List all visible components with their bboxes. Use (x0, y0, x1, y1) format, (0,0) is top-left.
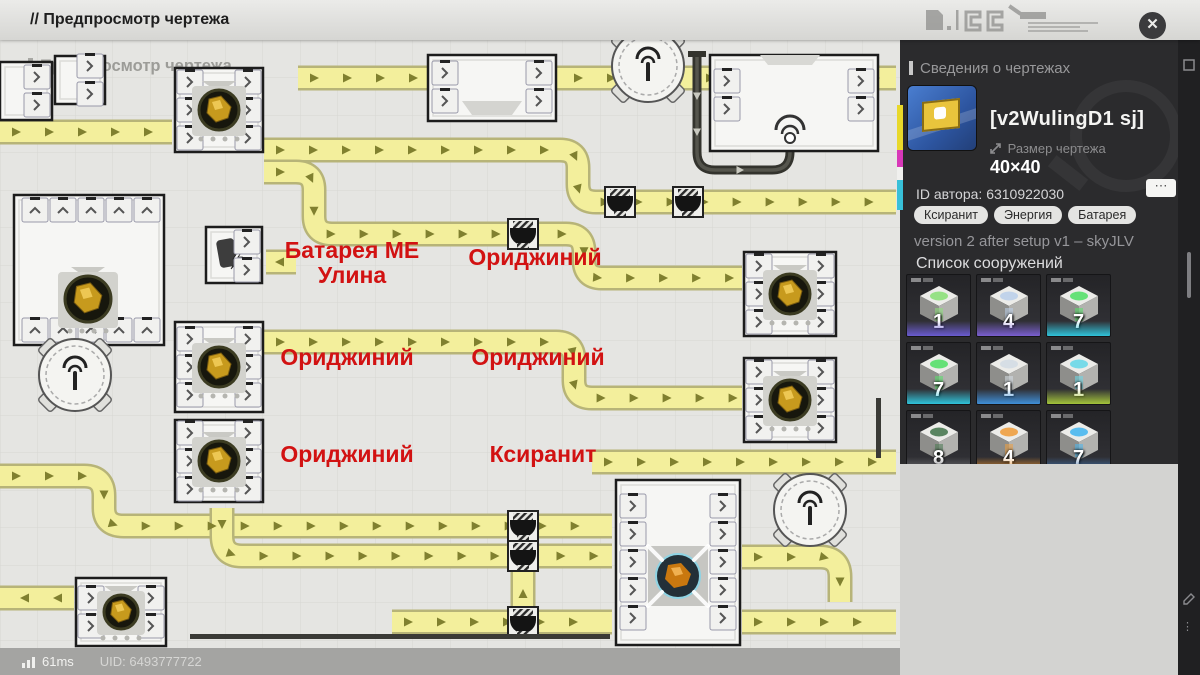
panel-footer-area: Сохранено (900, 464, 1178, 675)
version-note: version 2 after setup v1 – skyJLV (914, 233, 1134, 250)
ping-bars-icon (22, 656, 36, 668)
blueprint-preview-screen: Предпросмотр чертежаБатарея MEУлинаОридж… (0, 0, 1200, 675)
wall (190, 634, 610, 639)
belt-bridge (508, 511, 538, 541)
machine-depot (616, 480, 740, 645)
close-icon: ✕ (1146, 16, 1159, 33)
structure-tile[interactable]: 7 (906, 342, 971, 405)
power-pole (38, 338, 113, 413)
rail-dots: ⋮ (1182, 620, 1193, 633)
tile-accent-strip (1047, 389, 1110, 404)
map-label: Ориджиний (468, 244, 601, 270)
tag-list: КсиранитЭнергияБатарея (914, 206, 1136, 224)
map-label: Улина (318, 262, 387, 288)
tile-micro-label (911, 414, 937, 418)
tile-micro-label (1051, 278, 1077, 282)
structure-tile[interactable]: 1 (976, 342, 1041, 405)
page-title: // Предпросмотр чертежа (30, 11, 229, 29)
tag-chip: Ксиранит (914, 206, 988, 224)
blueprint-name: [v2WulingD1 sj] (990, 108, 1144, 131)
blueprint-size-value: 40×40 (990, 157, 1041, 178)
machine-device (206, 227, 262, 283)
expand-icon (990, 143, 1001, 154)
belt-bridge (508, 541, 538, 571)
machine-iohub (428, 55, 556, 121)
panel-side-rail: ⋮ (1178, 40, 1200, 675)
belt-bridge (605, 187, 635, 217)
tile-accent-strip (907, 321, 970, 336)
tile-micro-label (1051, 346, 1077, 350)
machine-smelter (175, 420, 263, 502)
map-label: Батарея ME (285, 237, 420, 263)
machine-smelter (175, 322, 263, 412)
machine-wifi (710, 55, 878, 151)
rail-edit-icon (1182, 592, 1196, 606)
structure-tile[interactable]: 1 (906, 274, 971, 337)
machine-smelter (744, 358, 836, 442)
header-decoration (920, 2, 1130, 38)
machine-smelter2 (76, 578, 166, 646)
tile-micro-label (981, 278, 1007, 282)
structure-tile[interactable]: 1 (1046, 342, 1111, 405)
top-bar: // Предпросмотр чертежа ✕ (0, 0, 1200, 40)
magnifier-watermark (1070, 80, 1182, 192)
tile-micro-label (981, 414, 1007, 418)
blueprint-info-panel: Сведения о чертежах [v2WulingD1 sj] Разм… (900, 40, 1200, 675)
machine-smelter (175, 68, 263, 152)
blueprint-map[interactable]: Предпросмотр чертежаБатарея MEУлинаОридж… (0, 40, 900, 648)
map-label: Ориджиний (280, 441, 413, 467)
map-label: Ксиранит (490, 441, 597, 467)
panel-section-title: Сведения о чертежах (920, 60, 1070, 77)
more-options-button[interactable]: ⋯ (1146, 179, 1176, 197)
author-id: ID автора: 6310922030 (916, 186, 1064, 202)
tile-accent-strip (977, 321, 1040, 336)
panel-scrollbar[interactable] (1187, 252, 1191, 298)
ellipsis-icon: ⋯ (1155, 178, 1168, 193)
tile-micro-label (911, 278, 937, 282)
tile-micro-label (911, 346, 937, 350)
uid-value: UID: 6493777722 (100, 654, 202, 669)
machine-io (0, 62, 52, 120)
map-area[interactable]: Предпросмотр чертежаБатарея MEУлинаОридж… (0, 40, 900, 648)
belt-bridge (673, 187, 703, 217)
map-label: Ориджиний (471, 344, 604, 370)
tile-accent-strip (1047, 321, 1110, 336)
ping-value: 61ms (42, 654, 74, 669)
structures-title: Список сооружений (916, 255, 1063, 273)
tile-accent-strip (907, 389, 970, 404)
blueprint-thumbnail (908, 86, 976, 150)
tag-chip: Энергия (994, 206, 1062, 224)
structure-tile[interactable]: 4 (976, 274, 1041, 337)
machine-io (55, 53, 105, 106)
tag-chip: Батарея (1068, 206, 1136, 224)
belt-bridge (508, 607, 538, 637)
wall (876, 398, 881, 458)
section-tick (909, 61, 913, 75)
structure-tile[interactable]: 7 (1046, 274, 1111, 337)
blueprint-size-label: Размер чертежа (990, 141, 1106, 156)
tile-micro-label (1051, 414, 1077, 418)
status-bar: 61ms UID: 6493777722 (0, 648, 900, 675)
machine-smelter (744, 252, 836, 336)
tile-accent-strip (977, 389, 1040, 404)
close-button[interactable]: ✕ (1139, 12, 1166, 39)
power-pole (773, 473, 848, 548)
map-label: Ориджиний (280, 344, 413, 370)
power-pole (611, 40, 686, 103)
machine-bignode (14, 195, 164, 345)
rail-doc-icon (1182, 58, 1196, 72)
tile-micro-label (981, 346, 1007, 350)
